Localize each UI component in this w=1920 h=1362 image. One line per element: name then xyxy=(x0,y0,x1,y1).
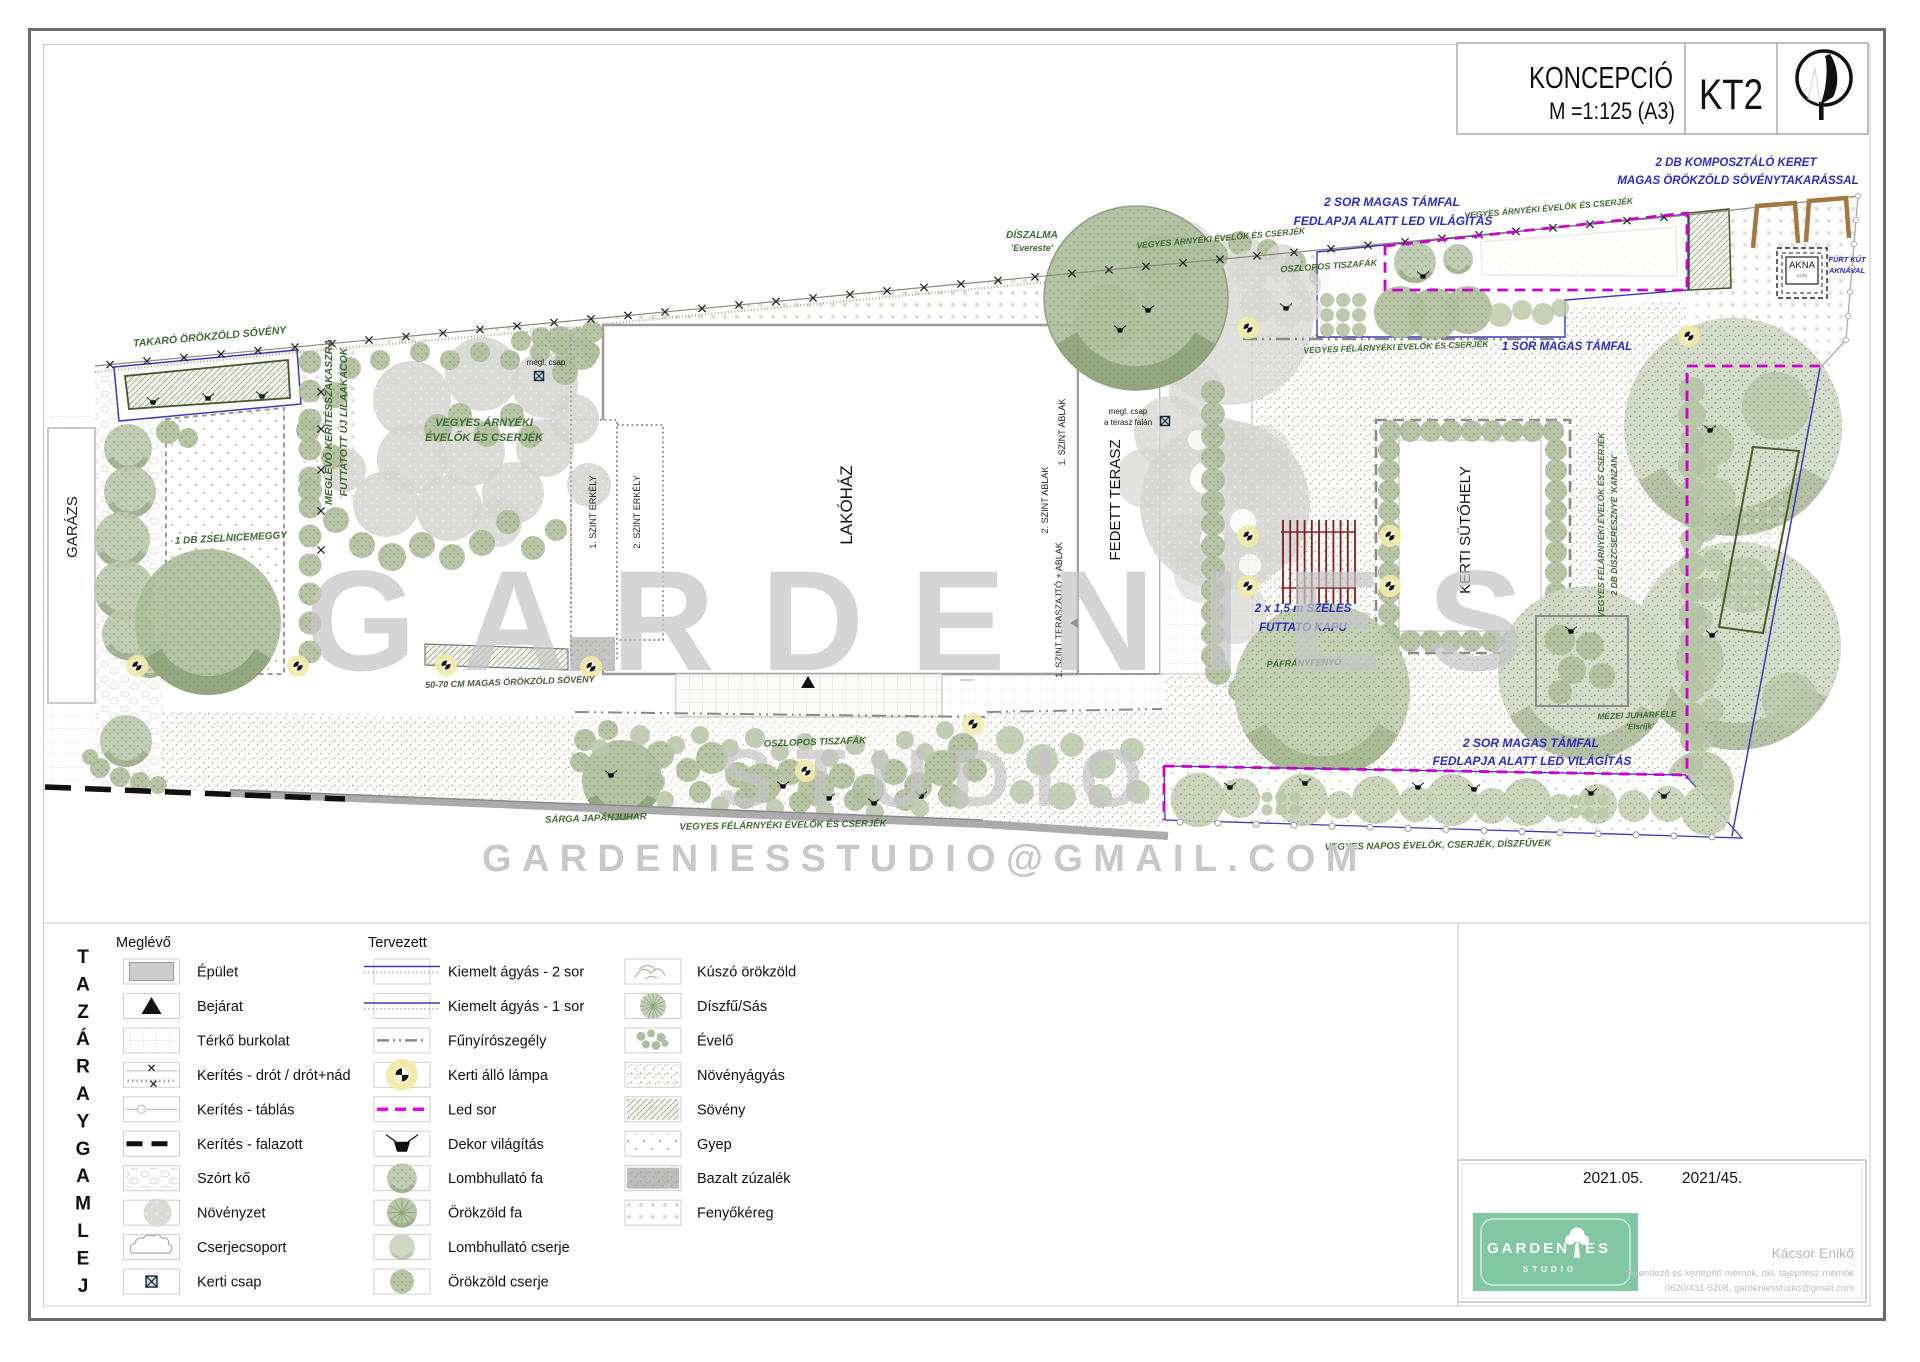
svg-text:AKNA: AKNA xyxy=(1789,260,1816,271)
svg-text:A: A xyxy=(76,1166,90,1187)
svg-text:Lombhullató cserje: Lombhullató cserje xyxy=(448,1240,570,1256)
svg-text:Dekor világítás: Dekor világítás xyxy=(448,1137,544,1153)
svg-text:DÍSZALMA: DÍSZALMA xyxy=(1006,228,1058,241)
svg-text:VEGYES ÁRNYÉKI: VEGYES ÁRNYÉKI xyxy=(435,416,534,429)
svg-text:2 SOR MAGAS TÁMFAL: 2 SOR MAGAS TÁMFAL xyxy=(1323,194,1460,209)
svg-text:Kiemelt ágyás - 2 sor: Kiemelt ágyás - 2 sor xyxy=(448,965,584,981)
svg-text:Lombhullató fa: Lombhullató fa xyxy=(448,1171,544,1187)
svg-text:Fűnyírószegély: Fűnyírószegély xyxy=(448,1033,547,1049)
svg-text:'Elsrijk': 'Elsrijk' xyxy=(1626,721,1655,731)
svg-text:A: A xyxy=(76,1084,90,1105)
svg-text:1 SOR MAGAS TÁMFAL: 1 SOR MAGAS TÁMFAL xyxy=(1502,340,1632,353)
svg-text:Á: Á xyxy=(76,1028,90,1050)
svg-text:2021/45.: 2021/45. xyxy=(1682,1170,1742,1187)
svg-text:Kerti álló lámpa: Kerti álló lámpa xyxy=(448,1068,549,1084)
svg-text:GARDEN: GARDEN xyxy=(1487,1240,1570,1257)
svg-text:G: G xyxy=(76,1139,91,1160)
svg-text:Z: Z xyxy=(77,1002,89,1023)
svg-text:2. SZINT ABLAK: 2. SZINT ABLAK xyxy=(1040,467,1050,534)
svg-text:Szórt kő: Szórt kő xyxy=(197,1171,250,1187)
svg-text:KT2: KT2 xyxy=(1699,71,1763,119)
svg-text:megl. csap: megl. csap xyxy=(527,358,566,367)
svg-text:Bejárat: Bejárat xyxy=(197,999,243,1015)
svg-text:GARÁZS: GARÁZS xyxy=(64,496,81,558)
svg-text:Bazalt zúzalék: Bazalt zúzalék xyxy=(697,1171,791,1187)
svg-text:Épület: Épület xyxy=(197,964,238,981)
svg-text:MAGAS ÖRÖKZÖLD SÖVÉNYTAKARÁSSA: MAGAS ÖRÖKZÖLD SÖVÉNYTAKARÁSSAL xyxy=(1617,174,1858,187)
svg-text:M: M xyxy=(75,1194,91,1215)
svg-text:LAKÓHÁZ: LAKÓHÁZ xyxy=(837,465,856,544)
svg-text:a terasz falán: a terasz falán xyxy=(1104,418,1152,427)
svg-text:Sövény: Sövény xyxy=(697,1102,746,1118)
svg-text:Kúszó örökzöld: Kúszó örökzöld xyxy=(697,965,796,981)
svg-text:GARDENIES: GARDENIES xyxy=(305,542,1569,701)
svg-text:2 DB DÍSZCSERESZNYE 'KANZAN': 2 DB DÍSZCSERESZNYE 'KANZAN' xyxy=(1609,454,1619,597)
svg-text:Kerítés - falazott: Kerítés - falazott xyxy=(197,1137,303,1153)
svg-text:2. SZINT ERKÉLY: 2. SZINT ERKÉLY xyxy=(632,475,642,548)
svg-text:FÚRT KÚT: FÚRT KÚT xyxy=(1828,255,1867,264)
svg-text:VEGYES FÉLÁRNYÉKI ÉVELŐK ÉS CS: VEGYES FÉLÁRNYÉKI ÉVELŐK ÉS CSERJÉK xyxy=(1595,432,1606,618)
svg-text:Díszfű/Sás: Díszfű/Sás xyxy=(697,999,767,1015)
svg-text:A: A xyxy=(76,974,90,995)
svg-text:R: R xyxy=(76,1057,90,1078)
svg-text:FUTTATOTT ÚJ LILAAKÁCOK: FUTTATOTT ÚJ LILAAKÁCOK xyxy=(337,346,350,496)
svg-text:2 SOR MAGAS TÁMFAL: 2 SOR MAGAS TÁMFAL xyxy=(1462,735,1599,750)
svg-text:Tervezett: Tervezett xyxy=(368,935,427,951)
svg-text:M =1:125 (A3): M =1:125 (A3) xyxy=(1549,98,1675,125)
svg-text:kútfej: kútfej xyxy=(1797,273,1808,278)
svg-text:Térkő burkolat: Térkő burkolat xyxy=(197,1033,290,1049)
svg-text:Növényágyás: Növényágyás xyxy=(697,1068,785,1084)
svg-text:Kerítés - táblás: Kerítés - táblás xyxy=(197,1102,295,1118)
svg-text:2 DB KOMPOSZTÁLÓ KERET: 2 DB KOMPOSZTÁLÓ KERET xyxy=(1654,156,1817,169)
svg-text:Kerítés - drót / drót+nád: Kerítés - drót / drót+nád xyxy=(197,1068,351,1084)
svg-text:GARDENIESSTUDIO@GMAIL.COM: GARDENIESSTUDIO@GMAIL.COM xyxy=(482,838,1368,880)
svg-text:Cserjecsoport: Cserjecsoport xyxy=(197,1240,286,1256)
svg-text:FEDLAPJA ALATT LED VILÁGÍTÁS: FEDLAPJA ALATT LED VILÁGÍTÁS xyxy=(1294,213,1493,228)
svg-text:STUDIO: STUDIO xyxy=(718,733,1166,824)
svg-text:Örökzöld cserje: Örökzöld cserje xyxy=(448,1273,549,1291)
svg-text:'Evereste': 'Evereste' xyxy=(1011,243,1054,253)
svg-text:E: E xyxy=(77,1248,90,1269)
svg-text:Led sor: Led sor xyxy=(448,1102,497,1118)
svg-text:Kiemelt ágyás - 1 sor: Kiemelt ágyás - 1 sor xyxy=(448,999,584,1015)
svg-text:2021.05.: 2021.05. xyxy=(1583,1170,1643,1187)
svg-text:Kácsor Enikő: Kácsor Enikő xyxy=(1772,1245,1855,1261)
svg-text:AKNÁVAL: AKNÁVAL xyxy=(1828,266,1866,275)
svg-text:L: L xyxy=(77,1221,89,1242)
svg-text:megl. csap: megl. csap xyxy=(1109,407,1148,416)
svg-text:Fenyőkéreg: Fenyőkéreg xyxy=(697,1206,774,1222)
svg-text:Növényzet: Növényzet xyxy=(197,1206,266,1222)
svg-text:MEGLÉVŐ KERÍTÉSSZAKASZRA: MEGLÉVŐ KERÍTÉSSZAKASZRA xyxy=(322,339,335,505)
svg-text:Meglévő: Meglévő xyxy=(116,935,171,951)
svg-text:1. SZINT ERKÉLY: 1. SZINT ERKÉLY xyxy=(588,475,598,548)
svg-text:Évelő: Évelő xyxy=(697,1032,733,1049)
svg-text:0620/431-5208, gardeniesstudio: 0620/431-5208, gardeniesstudio@gmail.com xyxy=(1665,1283,1854,1294)
svg-text:FEDLAPJA ALATT LED VILÁGÍTÁS: FEDLAPJA ALATT LED VILÁGÍTÁS xyxy=(1433,753,1632,768)
svg-text:Y: Y xyxy=(77,1111,90,1132)
svg-text:ES: ES xyxy=(1585,1240,1611,1257)
svg-text:KONCEPCIÓ: KONCEPCIÓ xyxy=(1529,60,1673,95)
svg-text:STUDIO: STUDIO xyxy=(1523,1265,1577,1274)
svg-text:1. SZINT ABLAK: 1. SZINT ABLAK xyxy=(1057,399,1067,466)
svg-text:Örökzöld fa: Örökzöld fa xyxy=(448,1204,523,1222)
svg-text:T: T xyxy=(77,947,89,968)
svg-text:Kerti csap: Kerti csap xyxy=(197,1275,261,1291)
svg-text:tájrendező és kertépítő mérnök: tájrendező és kertépítő mérnök, okl. táj… xyxy=(1625,1268,1854,1279)
svg-text:ÉVELŐK ÉS CSERJÉK: ÉVELŐK ÉS CSERJÉK xyxy=(425,431,544,444)
svg-text:Gyep: Gyep xyxy=(697,1137,732,1153)
svg-text:J: J xyxy=(78,1276,89,1297)
